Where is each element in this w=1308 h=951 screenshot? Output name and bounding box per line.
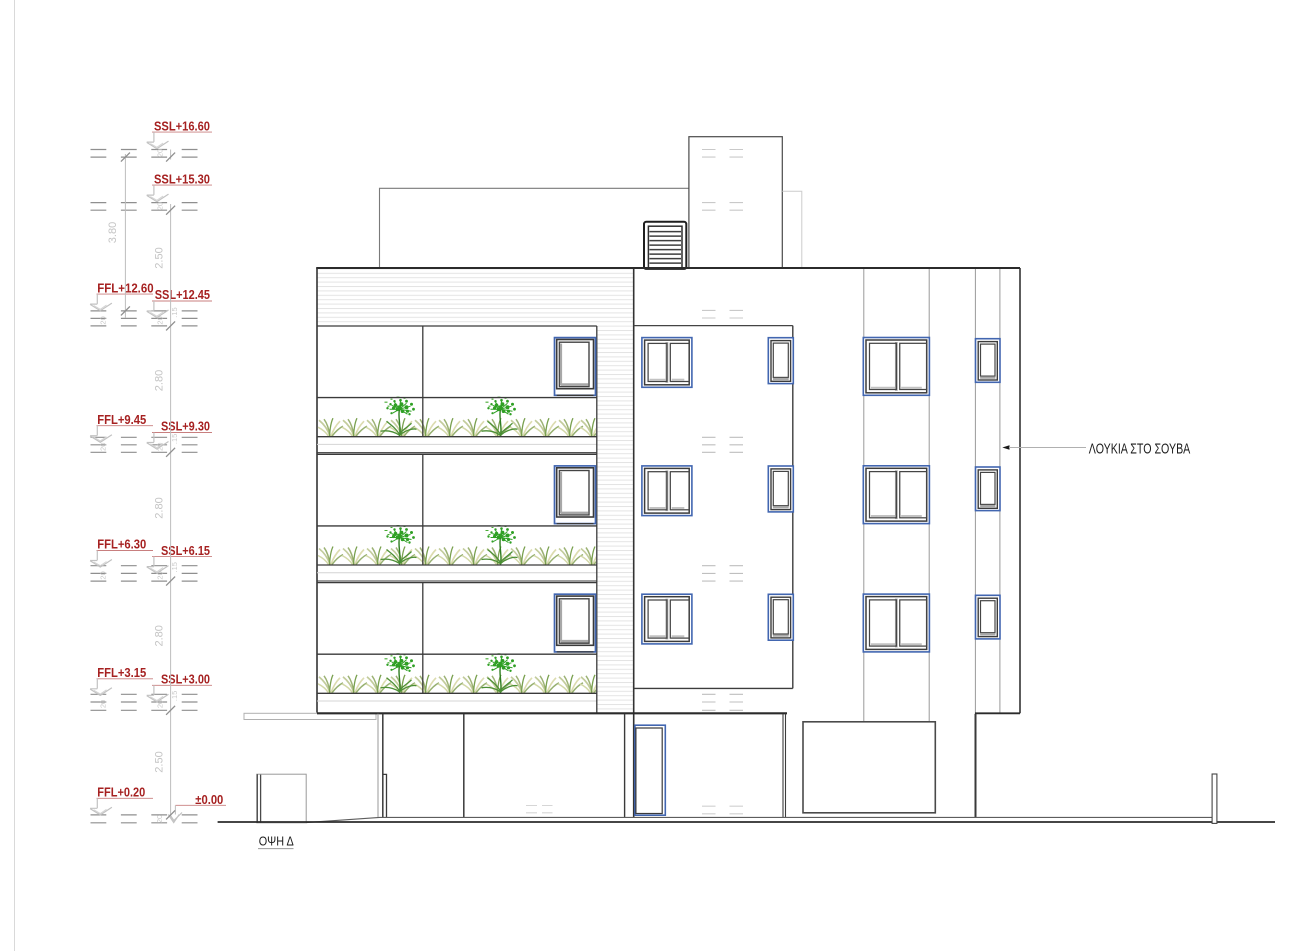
svg-text:SSL+12.45: SSL+12.45 <box>155 287 210 302</box>
svg-text:20: 20 <box>155 700 164 708</box>
svg-text:20: 20 <box>99 700 108 708</box>
svg-text:FFL+0.20: FFL+0.20 <box>97 785 145 800</box>
svg-text:SSL+15.30: SSL+15.30 <box>154 171 210 186</box>
svg-text:20: 20 <box>99 443 108 451</box>
svg-text:20: 20 <box>99 571 108 579</box>
svg-text:SSL+16.60: SSL+16.60 <box>154 118 210 133</box>
svg-text:SSL+3.00: SSL+3.00 <box>161 672 210 687</box>
svg-text:2.50: 2.50 <box>153 247 165 268</box>
svg-text:ΛΟΥΚΙΑ ΣΤΟ ΣΟΥΒΑ: ΛΟΥΚΙΑ ΣΤΟ ΣΟΥΒΑ <box>1089 441 1191 457</box>
svg-text:FFL+9.45: FFL+9.45 <box>97 412 146 427</box>
svg-text:20: 20 <box>155 316 164 324</box>
svg-text:.15: .15 <box>170 562 179 572</box>
svg-text:2.80: 2.80 <box>153 625 165 646</box>
svg-text:2.50: 2.50 <box>153 751 165 772</box>
svg-text:20: 20 <box>155 571 164 579</box>
svg-text:.15: .15 <box>170 307 179 317</box>
svg-text:ΟΨΗ Δ: ΟΨΗ Δ <box>259 835 294 849</box>
svg-text:SSL+9.30: SSL+9.30 <box>161 419 210 434</box>
svg-text:±0.00: ±0.00 <box>195 792 223 807</box>
svg-text:20: 20 <box>155 443 164 451</box>
svg-text:.15: .15 <box>170 434 179 444</box>
svg-text:2.80: 2.80 <box>153 497 165 518</box>
svg-text:FFL+6.30: FFL+6.30 <box>97 537 146 552</box>
svg-text:2.80: 2.80 <box>153 370 165 391</box>
svg-text:3.80: 3.80 <box>107 222 119 243</box>
svg-text:20: 20 <box>155 202 164 210</box>
svg-text:FFL+3.15: FFL+3.15 <box>97 665 146 680</box>
svg-text:20: 20 <box>155 149 164 157</box>
svg-text:20: 20 <box>99 316 108 324</box>
svg-text:20: 20 <box>155 815 164 823</box>
svg-text:SSL+6.15: SSL+6.15 <box>161 543 210 558</box>
svg-text:.15: .15 <box>170 691 179 701</box>
